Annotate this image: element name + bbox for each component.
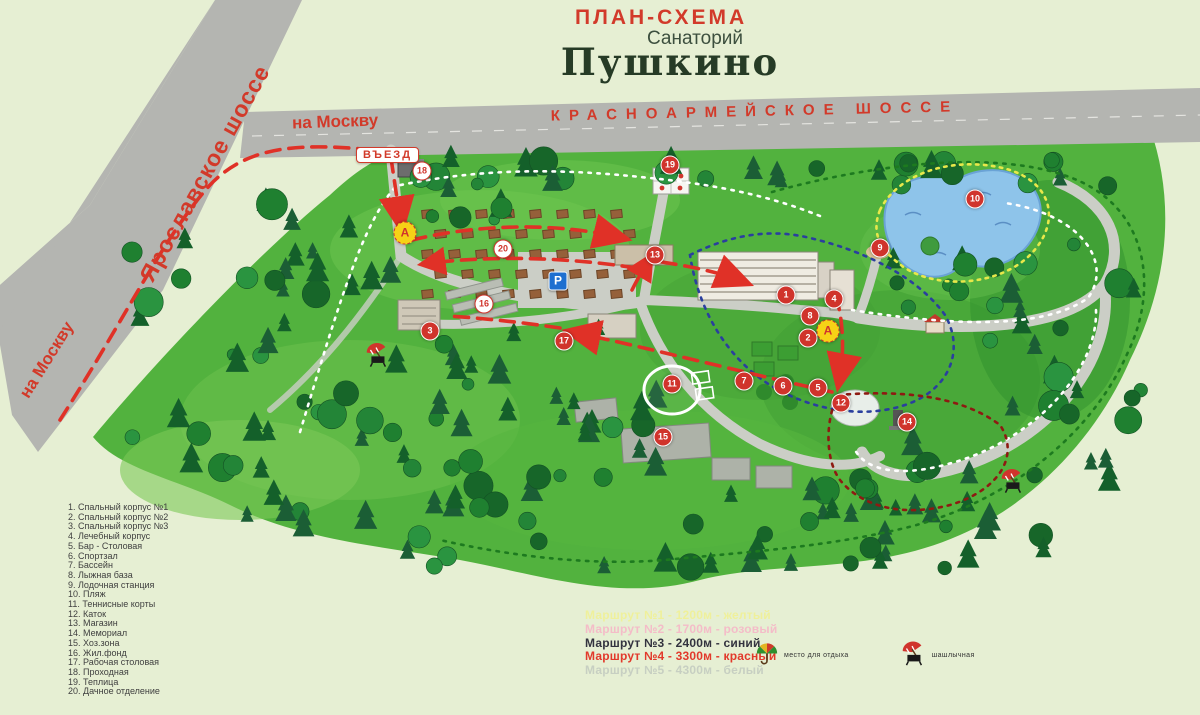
poi-label: шашлычная: [932, 652, 975, 659]
legend-item: 20. Дачное отделение: [68, 687, 168, 697]
map-marker-17: 17: [555, 332, 574, 351]
to-moscow-label-top: на Москву: [292, 111, 379, 134]
entrance-badge: ВЪЕЗД: [356, 147, 419, 163]
map-marker-18: 18: [413, 162, 432, 181]
route-legend-item: Маршрут №4 - 3300м - красный: [585, 650, 777, 664]
map-marker-10: 10: [966, 190, 985, 209]
poi-legend-rest-area: место для отдыха: [755, 641, 849, 671]
poi-label: место для отдыха: [784, 652, 849, 659]
map-bbq-icon-1: [363, 342, 391, 373]
bus-stop-marker-2: А: [817, 320, 840, 343]
route-legend-item: Маршрут №1 - 1200м - желтый: [585, 609, 777, 623]
map-marker-9: 9: [871, 239, 890, 258]
map-marker-12: 12: [832, 394, 851, 413]
parking-sign: P: [549, 272, 568, 291]
map-marker-1: 1: [777, 286, 796, 305]
poi-legend-bbq: шашлычная: [899, 640, 975, 671]
map-marker-19: 19: [661, 156, 680, 175]
route-legend: Маршрут №1 - 1200м - желтыйМаршрут №2 - …: [585, 609, 777, 678]
island: [921, 237, 939, 255]
bbq-icon: [899, 640, 927, 671]
map-marker-8: 8: [801, 307, 820, 326]
map-marker-15: 15: [654, 428, 673, 447]
map-marker-6: 6: [774, 377, 793, 396]
map-marker-5: 5: [809, 379, 828, 398]
building-main-1: [698, 252, 818, 300]
map-marker-20: 20: [494, 240, 513, 259]
map-marker-13: 13: [646, 246, 665, 265]
map-marker-7: 7: [735, 372, 754, 391]
object-legend: 1. Спальный корпус №12. Спальный корпус …: [68, 503, 168, 697]
sanatorium-name: Пушкино: [555, 40, 785, 84]
map-marker-2: 2: [799, 329, 818, 348]
map-bbq-icon-2: [998, 468, 1026, 499]
bus-stop-marker-1: А: [394, 222, 417, 245]
map-marker-3: 3: [421, 322, 440, 341]
plan-schema-map: ПЛАН-СХЕМА Санаторий Пушкино Ярославское…: [0, 0, 1200, 715]
poi-legend: место для отдыхашашлычная: [755, 640, 975, 671]
map-marker-16: 16: [475, 295, 494, 314]
rest-area-icon: [755, 641, 779, 671]
map-marker-4: 4: [825, 290, 844, 309]
map-marker-11: 11: [663, 375, 682, 394]
route-legend-item: Маршрут №2 - 1700м - розовый: [585, 623, 777, 637]
page-title: ПЛАН-СХЕМА: [575, 6, 745, 30]
route-legend-item: Маршрут №3 - 2400м - синий: [585, 637, 777, 651]
route-legend-item: Маршрут №5 - 4300м - белый: [585, 664, 777, 678]
map-marker-14: 14: [898, 413, 917, 432]
